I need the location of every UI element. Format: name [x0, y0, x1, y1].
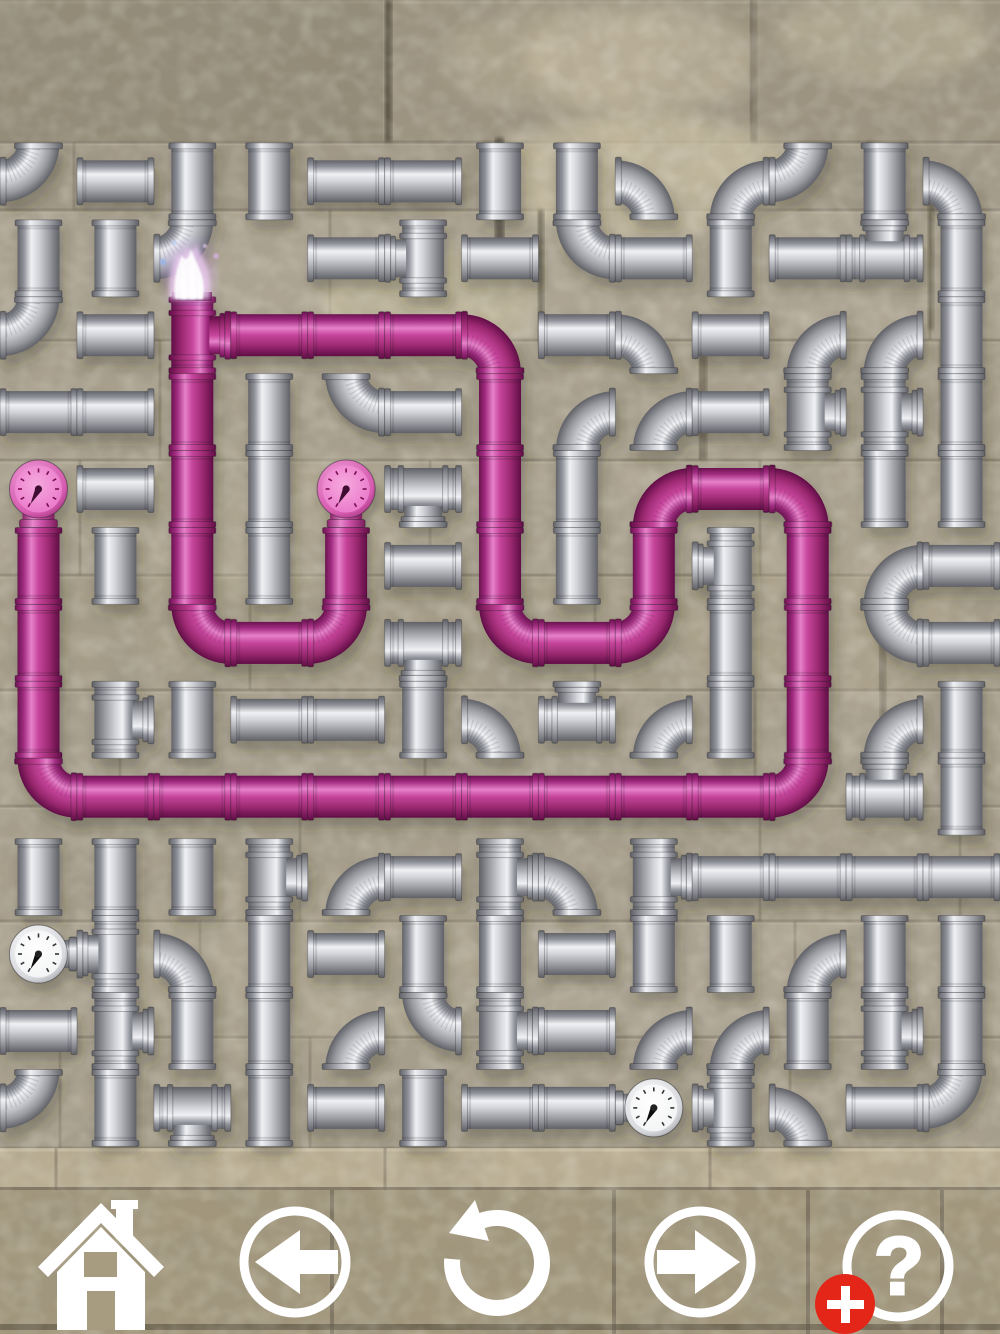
svg-text:?: ? — [874, 1221, 924, 1312]
